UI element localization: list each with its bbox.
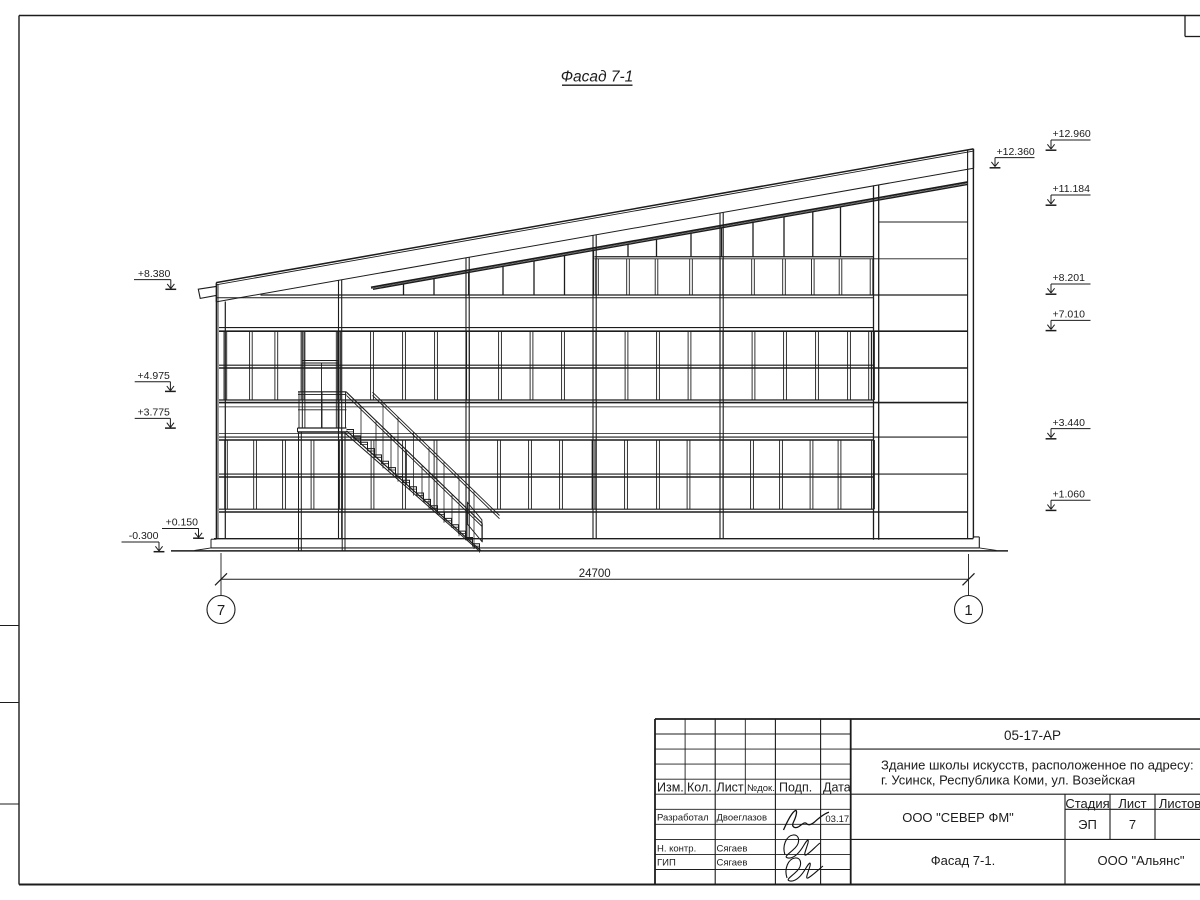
svg-text:Сягаев: Сягаев — [717, 858, 748, 869]
svg-text:+3.440: +3.440 — [1053, 417, 1086, 429]
svg-text:ООО "СЕВЕР ФМ": ООО "СЕВЕР ФМ" — [902, 810, 1014, 825]
svg-text:+4.975: +4.975 — [137, 370, 170, 382]
svg-text:ООО "Альянс": ООО "Альянс" — [1098, 853, 1185, 868]
svg-text:Подп.: Подп. — [779, 781, 812, 795]
svg-text:Дата: Дата — [823, 781, 851, 795]
svg-text:Здание школы искусств, располо: Здание школы искусств, расположенное по … — [881, 758, 1194, 773]
svg-text:Фасад 7-1: Фасад 7-1 — [561, 69, 634, 86]
svg-text:+7.010: +7.010 — [1053, 309, 1086, 321]
svg-text:Листов: Листов — [1159, 796, 1200, 811]
svg-text:7: 7 — [1129, 817, 1136, 832]
svg-text:05-17-АР: 05-17-АР — [1004, 728, 1061, 743]
svg-text:+12.360: +12.360 — [997, 146, 1035, 158]
svg-text:+12.960: +12.960 — [1053, 128, 1091, 140]
svg-text:№док.: №док. — [747, 783, 775, 794]
svg-text:+11.184: +11.184 — [1053, 183, 1091, 195]
svg-text:-0.300: -0.300 — [129, 530, 159, 542]
svg-text:+1.060: +1.060 — [1053, 488, 1086, 500]
svg-text:1: 1 — [964, 602, 972, 619]
svg-text:+8.380: +8.380 — [138, 268, 171, 280]
svg-text:Лист: Лист — [717, 781, 744, 795]
svg-text:+3.775: +3.775 — [137, 407, 170, 419]
svg-text:Стадия: Стадия — [1065, 796, 1109, 811]
svg-text:Разработал: Разработал — [657, 813, 709, 824]
svg-text:24700: 24700 — [579, 568, 611, 580]
svg-text:Двоеглазов: Двоеглазов — [717, 813, 768, 824]
svg-text:7: 7 — [217, 602, 225, 619]
svg-text:ЭП: ЭП — [1078, 817, 1097, 832]
svg-text:+0.150: +0.150 — [166, 517, 199, 529]
svg-text:Изм.: Изм. — [657, 781, 684, 795]
svg-text:Кол.: Кол. — [687, 781, 712, 795]
svg-text:Фасад 7-1.: Фасад 7-1. — [931, 853, 995, 868]
svg-text:Лист: Лист — [1118, 796, 1146, 811]
svg-text:ГИП: ГИП — [657, 858, 676, 869]
svg-text:Сягаев: Сягаев — [717, 844, 748, 855]
svg-text:г. Усинск, Республика Коми, ул: г. Усинск, Республика Коми, ул. Возейска… — [881, 773, 1135, 788]
svg-text:03.17: 03.17 — [825, 814, 849, 825]
svg-text:Н. контр.: Н. контр. — [657, 844, 696, 855]
svg-text:+8.201: +8.201 — [1053, 272, 1086, 284]
